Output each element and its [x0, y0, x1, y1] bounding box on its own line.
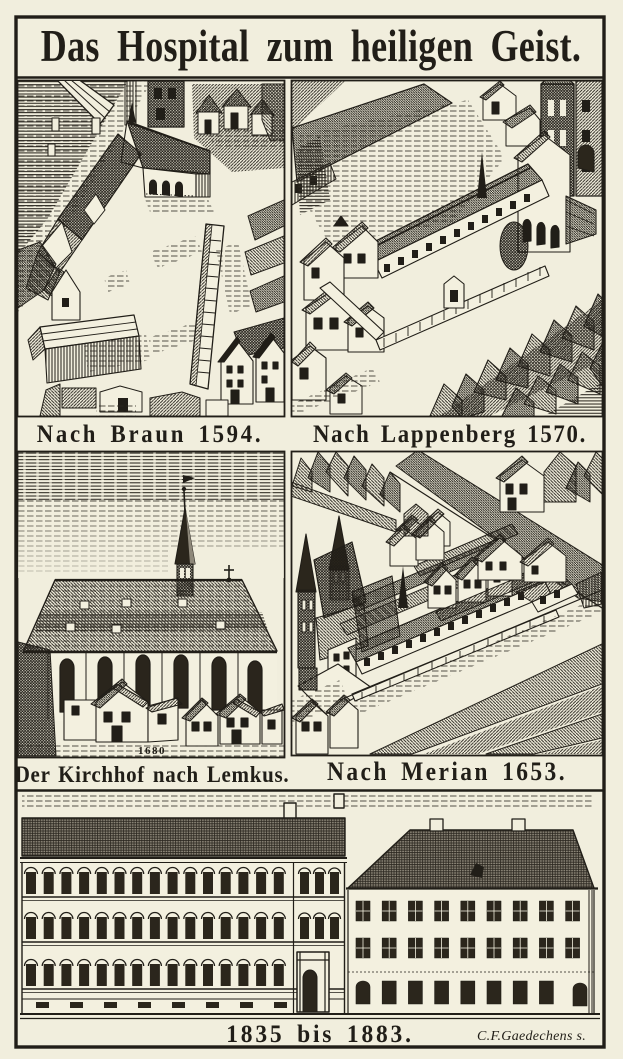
svg-text:Nach Lappenberg 1570.: Nach Lappenberg 1570. — [313, 420, 587, 448]
svg-text:Nach Braun 1594.: Nach Braun 1594. — [37, 420, 264, 448]
svg-text:1680: 1680 — [138, 745, 166, 757]
svg-text:1835 bis 1883.: 1835 bis 1883. — [226, 1020, 413, 1048]
svg-text:Der Kirchhof nach Lemkus.: Der Kirchhof nach Lemkus. — [15, 761, 290, 787]
svg-text:Nach Merian 1653.: Nach Merian 1653. — [327, 758, 567, 786]
svg-text:C.F.Gaedechens s.: C.F.Gaedechens s. — [477, 1029, 586, 1044]
svg-text:Das Hospital zum heiligen Geis: Das Hospital zum heiligen Geist. — [41, 21, 581, 71]
